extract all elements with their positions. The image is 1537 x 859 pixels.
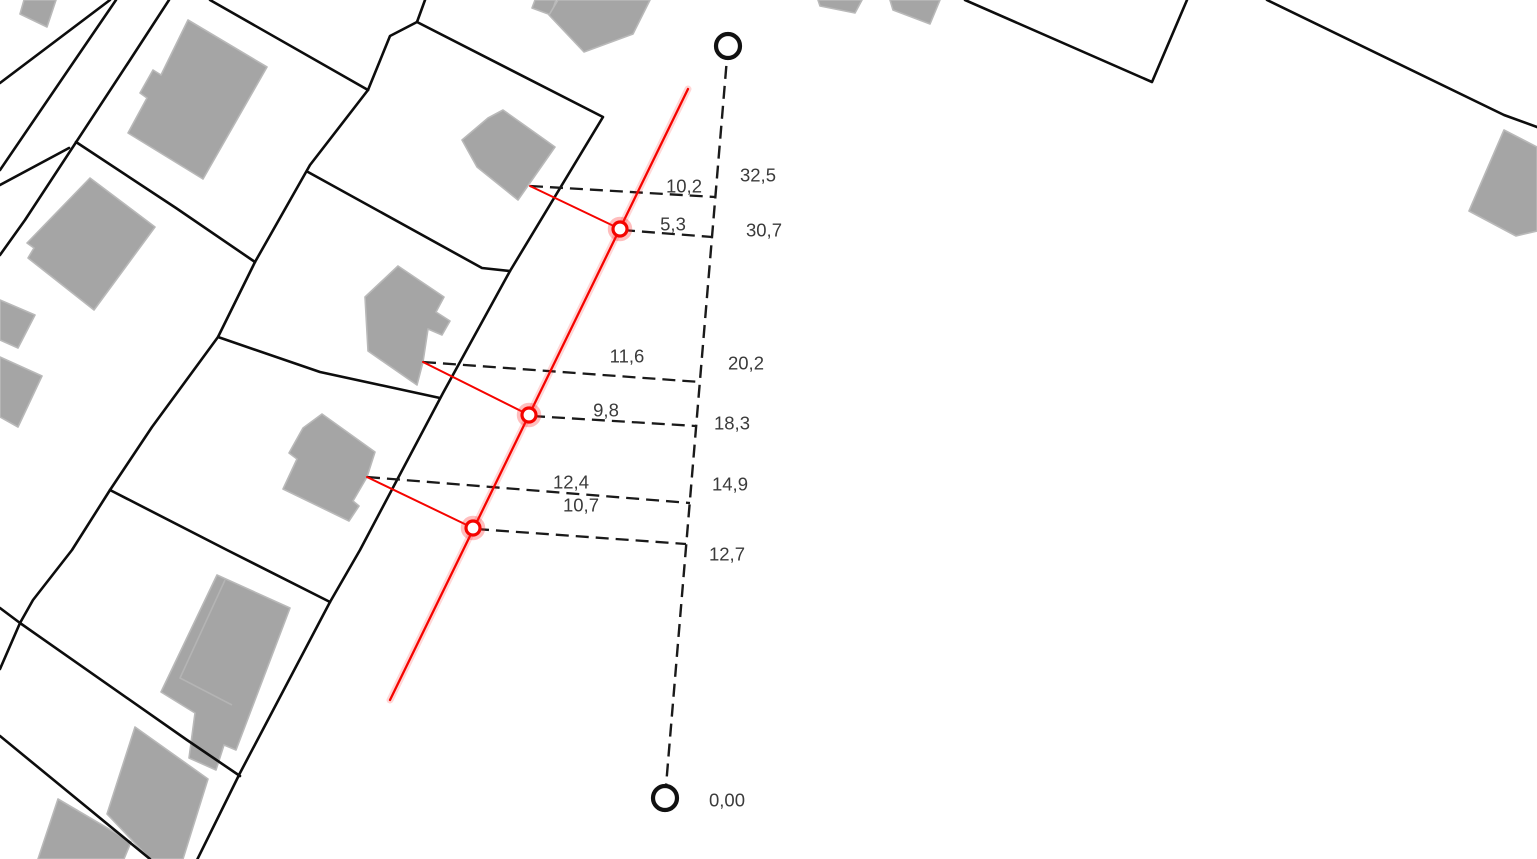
parcel-boundary-12: [197, 0, 603, 859]
parcel-boundary-7: [0, 608, 20, 623]
offset-value-label-1: 5,3: [660, 214, 686, 235]
red-tie-line-1: [423, 362, 529, 415]
map-canvas[interactable]: 10,25,311,69,812,410,732,530,720,218,314…: [0, 0, 1537, 859]
building-top-left-corner: [20, 0, 56, 27]
parcel-boundary-15: [965, 0, 1187, 82]
survey-point-1[interactable]: [522, 408, 536, 422]
baseline-endpoint-bottom[interactable]: [653, 786, 677, 810]
offset-value-label-4: 12,4: [553, 472, 589, 493]
building-top-right-b: [890, 0, 940, 24]
building-top-right-a: [818, 0, 862, 13]
parcel-boundary-8: [308, 172, 510, 271]
building-top-center: [549, 0, 650, 52]
offset-value-label-5: 10,7: [563, 495, 599, 516]
parcel-boundary-1: [0, 0, 116, 170]
red-survey-line: [390, 89, 688, 700]
station-label-0: 32,5: [740, 165, 776, 186]
red-tie-line-0: [530, 186, 620, 229]
survey-point-2[interactable]: [466, 521, 480, 535]
offset-dimension-line-4: [367, 477, 690, 503]
offset-value-label-3: 9,8: [593, 400, 619, 421]
building-nw-large: [128, 20, 267, 179]
building-south-tall: [161, 575, 290, 770]
station-label-6: 0,00: [709, 790, 745, 811]
station-label-2: 20,2: [728, 353, 764, 374]
building-row-middle: [365, 266, 450, 385]
baseline-endpoint-top[interactable]: [716, 34, 740, 58]
offset-value-label-0: 10,2: [666, 176, 702, 197]
station-label-1: 30,7: [746, 220, 782, 241]
building-row-south: [283, 414, 375, 521]
station-label-3: 18,3: [714, 413, 750, 434]
cadastral-survey-map[interactable]: 10,25,311,69,812,410,732,530,720,218,314…: [0, 0, 1537, 859]
offset-dimension-line-5: [476, 529, 686, 544]
station-label-5: 12,7: [709, 544, 745, 565]
parcel-boundary-0: [0, 0, 110, 83]
building-nw-lower: [27, 178, 155, 310]
parcel-boundary-6: [0, 90, 368, 669]
building-west-edge-upper: [0, 300, 35, 348]
building-west-edge-lower: [0, 357, 42, 427]
parcel-boundary-16: [1267, 0, 1537, 127]
station-label-4: 14,9: [712, 474, 748, 495]
survey-point-0[interactable]: [613, 222, 627, 236]
parcel-boundary-13: [368, 22, 417, 90]
offset-dimension-line-2: [423, 362, 700, 382]
offset-value-label-2: 11,6: [610, 346, 645, 367]
building-far-east: [1469, 130, 1537, 236]
